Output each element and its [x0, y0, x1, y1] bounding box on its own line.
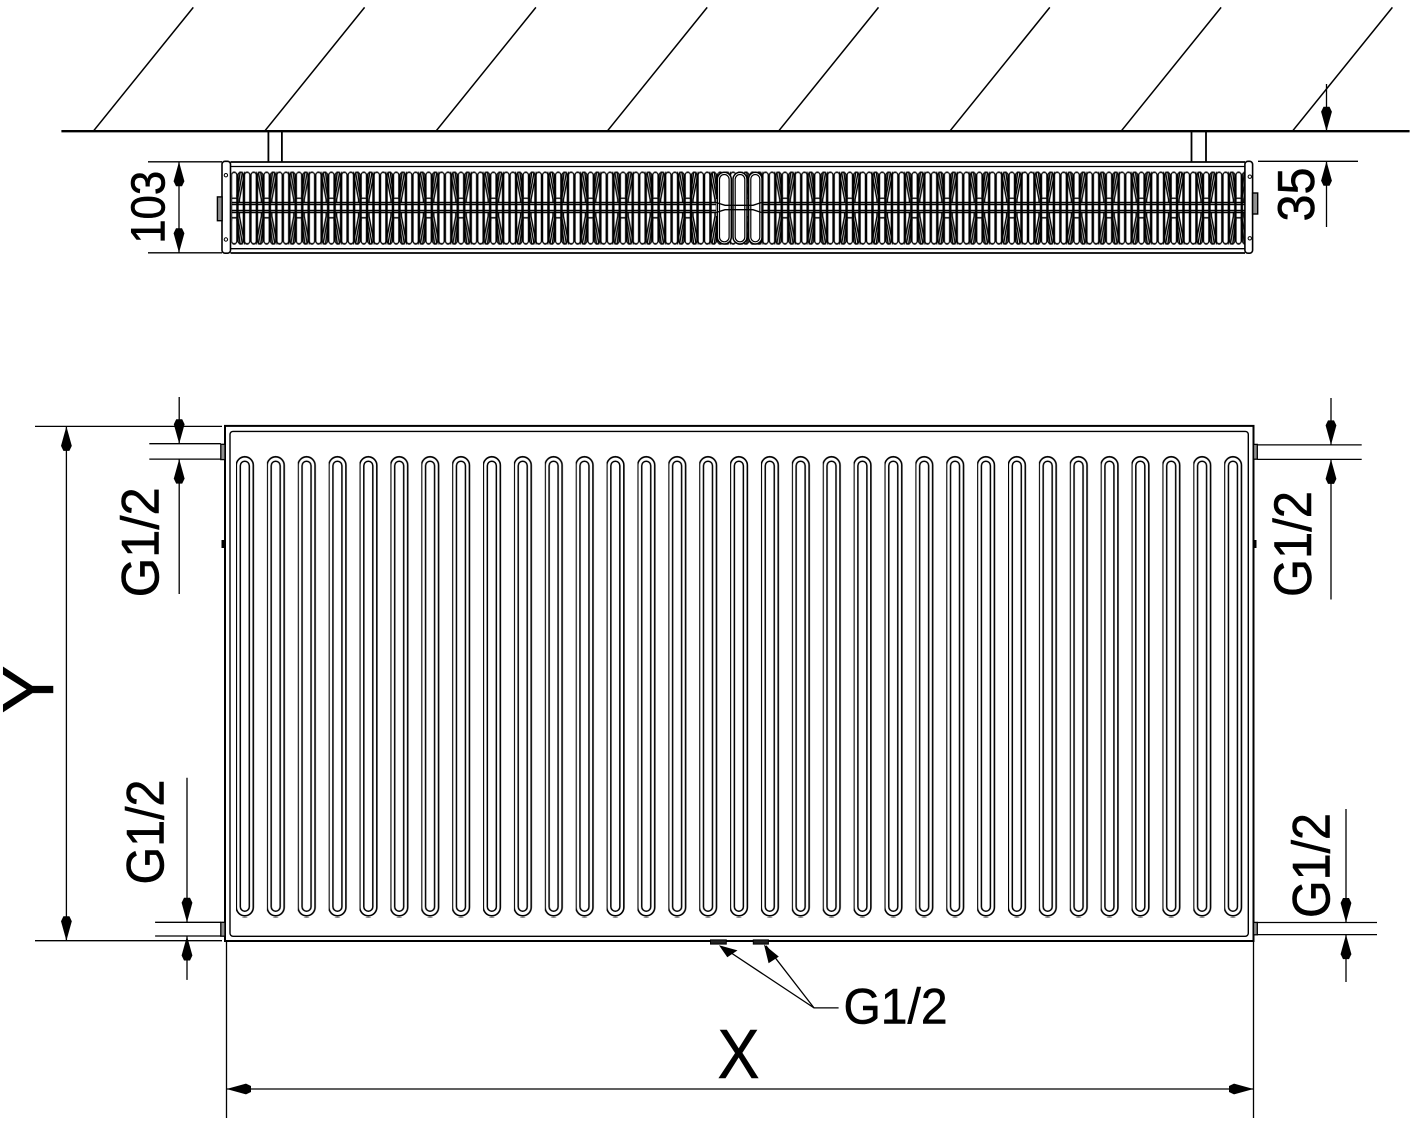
svg-text:G1/2: G1/2 — [844, 979, 948, 1035]
svg-text:G1/2: G1/2 — [112, 487, 171, 597]
svg-text:G1/2: G1/2 — [1264, 491, 1323, 597]
svg-text:35: 35 — [1268, 168, 1326, 222]
svg-text:G1/2: G1/2 — [117, 780, 176, 885]
svg-text:X: X — [718, 1015, 760, 1093]
svg-text:Y: Y — [0, 665, 69, 713]
svg-text:G1/2: G1/2 — [1283, 813, 1342, 918]
svg-text:103: 103 — [122, 171, 175, 244]
